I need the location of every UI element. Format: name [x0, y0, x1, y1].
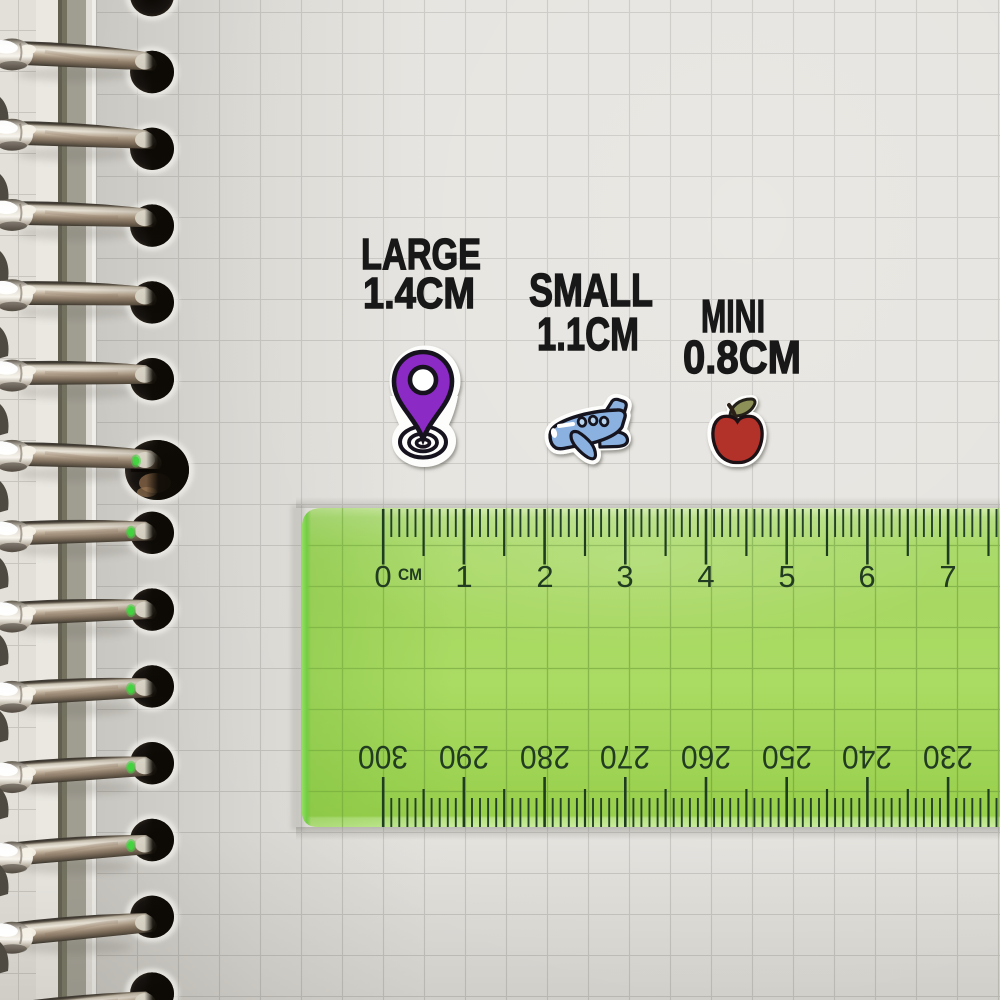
svg-text:3: 3 — [616, 559, 633, 594]
svg-text:1.4CM: 1.4CM — [363, 269, 475, 318]
svg-text:280: 280 — [520, 739, 570, 775]
svg-text:0.8CM: 0.8CM — [683, 331, 801, 383]
svg-text:300: 300 — [358, 739, 408, 775]
svg-text:290: 290 — [439, 739, 489, 775]
svg-text:270: 270 — [600, 739, 650, 775]
svg-text:6: 6 — [858, 559, 875, 594]
svg-text:CM: CM — [398, 565, 422, 584]
svg-text:240: 240 — [842, 739, 892, 775]
svg-text:4: 4 — [697, 559, 714, 594]
svg-text:250: 250 — [762, 739, 812, 775]
svg-text:260: 260 — [681, 739, 731, 775]
svg-text:5: 5 — [778, 559, 795, 594]
svg-text:2: 2 — [536, 559, 553, 594]
svg-text:1.1CM: 1.1CM — [537, 308, 639, 360]
svg-text:0: 0 — [374, 559, 391, 594]
svg-text:7: 7 — [939, 559, 956, 594]
svg-text:1: 1 — [455, 559, 472, 594]
svg-text:230: 230 — [923, 739, 973, 775]
